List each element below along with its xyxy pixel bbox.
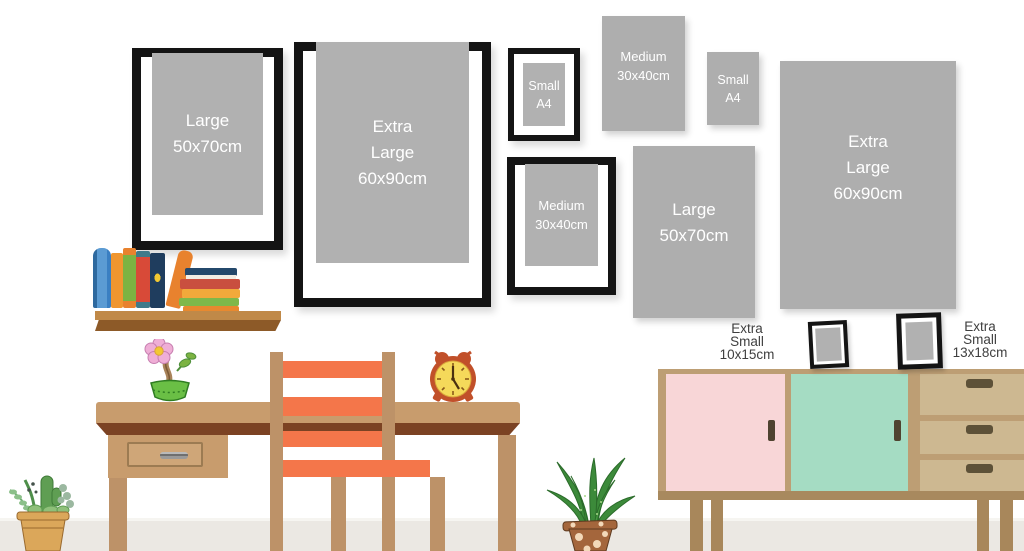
frame-label-line: 60x90cm	[834, 181, 903, 207]
sideboard-leg	[711, 500, 723, 551]
chair-slat	[283, 431, 382, 447]
frame-size-label: Small A4	[717, 71, 748, 107]
desk-leg	[109, 478, 127, 551]
print-small-a4: Small A4	[707, 52, 759, 125]
frame-large-50x70-black: Large 50x70cm	[132, 48, 283, 250]
frame-size-label: Large 50x70cm	[152, 53, 263, 215]
frame-label-line: Small	[717, 71, 748, 89]
frame-label-line: Large	[846, 155, 889, 181]
succulent-pot-illustration	[5, 448, 81, 551]
print-medium-30x40: Medium 30x40cm	[602, 16, 685, 131]
book	[111, 253, 123, 308]
alarm-clock-illustration	[427, 349, 479, 404]
sideboard-door-mint	[791, 374, 908, 492]
frame-label-line: Extra	[848, 129, 888, 155]
flower-pot-illustration	[139, 339, 201, 404]
frame-label-line: A4	[536, 95, 551, 113]
extra-small-13x18-label: Extra Small 13x18cm	[934, 320, 1024, 359]
chair-slat	[283, 397, 382, 416]
stacked-book	[182, 289, 240, 298]
stacked-book	[180, 279, 240, 289]
frame-label-line: 50x70cm	[660, 223, 729, 249]
frame-size-label: Large 50x70cm	[660, 197, 729, 249]
standing-frame-print	[815, 327, 842, 361]
wall-shelf-edge	[95, 320, 281, 331]
extra-small-10x15-label: Extra Small 10x15cm	[701, 322, 793, 361]
frame-medium-30x40-black: Medium 30x40cm	[507, 157, 616, 295]
chair-back-post	[270, 352, 283, 551]
chair-leg	[331, 477, 346, 551]
frame-small-a4-black: Small A4	[508, 48, 580, 141]
frame-size-label: Extra Large 60x90cm	[316, 42, 469, 263]
print-extra-large-60x90: Extra Large 60x90cm	[780, 61, 956, 309]
wall-shelf	[95, 311, 281, 320]
drawer-handle	[966, 379, 993, 388]
standing-frame-10x15	[808, 320, 849, 369]
frame-size-label: Extra Large 60x90cm	[834, 129, 903, 207]
frame-label-line: 30x40cm	[535, 215, 588, 234]
frame-label-line: 50x70cm	[173, 134, 242, 160]
frame-size-label: Medium 30x40cm	[617, 47, 670, 85]
book	[123, 248, 136, 308]
print-large-50x70: Large 50x70cm	[633, 146, 755, 318]
frame-size-label: Medium 30x40cm	[525, 164, 598, 266]
frame-label-line: Large	[186, 108, 229, 134]
sideboard-bottom-rail	[658, 491, 1024, 500]
book	[150, 253, 165, 308]
frame-label-line: Small	[528, 77, 559, 95]
frame-label-line: Extra	[373, 114, 413, 140]
door-handle	[894, 420, 901, 441]
frame-label-line: Medium	[620, 47, 666, 66]
frame-label-line: Large	[672, 197, 715, 223]
chair-slat	[283, 361, 382, 378]
chair-back-post	[382, 352, 395, 551]
frame-label-line: 60x90cm	[358, 166, 427, 192]
frame-extra-large-60x90-black: Extra Large 60x90cm	[294, 42, 491, 307]
drawer-handle	[966, 464, 993, 473]
frame-label-line: Medium	[538, 196, 584, 215]
frame-label-line: 30x40cm	[617, 66, 670, 85]
desk-leg	[498, 435, 516, 551]
chair-seat	[283, 460, 430, 477]
frame-label-line: 10x15cm	[701, 348, 793, 361]
standing-frame-print	[905, 322, 933, 361]
frame-label-line: A4	[725, 89, 740, 107]
frame-size-guide-scene: Large 50x70cm Extra Large 60x90cm Small …	[0, 0, 1024, 551]
drawer-handle	[966, 425, 993, 434]
sideboard-leg	[977, 500, 989, 551]
chair-leg	[430, 477, 445, 551]
frame-size-label: Small A4	[523, 63, 565, 126]
sideboard-leg	[690, 500, 703, 551]
aloe-plant-illustration	[537, 432, 645, 551]
sideboard-leg	[1000, 500, 1013, 551]
frame-label-line: Large	[371, 140, 414, 166]
book	[136, 251, 150, 308]
desk-drawer-handle	[160, 452, 188, 459]
frame-label-line: 13x18cm	[934, 346, 1024, 359]
door-handle	[768, 420, 775, 441]
book	[93, 248, 111, 308]
stacked-book	[179, 298, 239, 306]
